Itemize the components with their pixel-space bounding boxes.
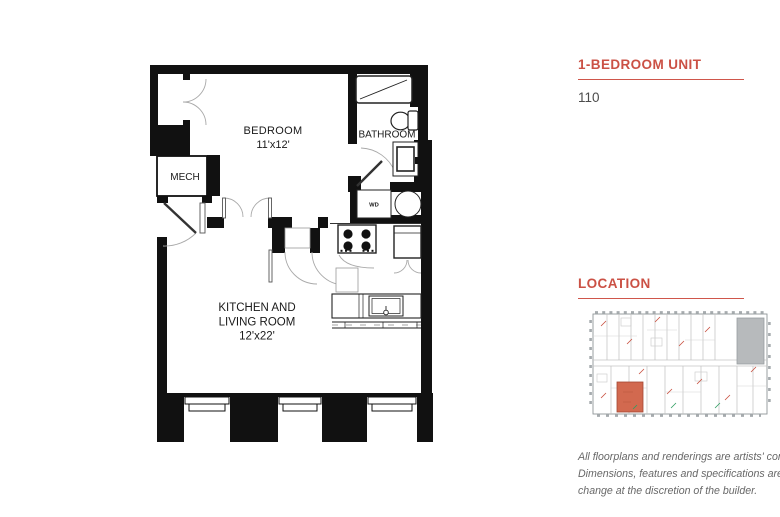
kitchen-living-dims: 12'x22' [239, 331, 275, 343]
bedroom-label: BEDROOM [244, 125, 303, 137]
location-divider [578, 298, 744, 299]
location-map [577, 310, 773, 418]
washer-dryer [357, 190, 421, 218]
floorplan-drawing: BEDROOM 11'x12' BATHROOM MECH WD KITCHEN… [140, 55, 450, 455]
unit-header: 1-BEDROOM UNIT 110 [578, 57, 744, 105]
bedroom-dims: 11'x12' [256, 139, 289, 151]
mech-label: MECH [170, 172, 199, 183]
location-header: LOCATION [578, 276, 744, 299]
kitchen-living-label-2: LIVING ROOM [219, 317, 296, 329]
bathtub [356, 76, 412, 103]
wd-label: WD [369, 203, 379, 209]
map-amenity-block [737, 318, 764, 364]
disclaimer-line: All floorplans and renderings are artist… [578, 449, 780, 466]
disclaimer-line: change at the discretion of the builder. [578, 483, 780, 500]
windows [185, 397, 416, 411]
disclaimer-line: Dimensions, features and specifications … [578, 466, 780, 483]
bathroom-label: BATHROOM [358, 130, 415, 141]
dishwasher [336, 268, 358, 292]
location-title: LOCATION [578, 276, 744, 291]
bathroom-sink [393, 142, 420, 176]
kitchen-living-label-1: KITCHEN AND [218, 302, 295, 314]
fridge [394, 226, 421, 258]
unit-title: 1-BEDROOM UNIT [578, 57, 744, 72]
kitchen-appliances [330, 224, 421, 329]
map-highlighted-unit [617, 382, 643, 412]
stove [338, 225, 376, 253]
hall-niche [285, 228, 310, 248]
toilet [391, 111, 418, 130]
disclaimer: All floorplans and renderings are artist… [578, 449, 780, 500]
unit-number: 110 [578, 90, 744, 105]
floorplan-sheet: BEDROOM 11'x12' BATHROOM MECH WD KITCHEN… [0, 0, 780, 517]
title-divider [578, 79, 744, 80]
